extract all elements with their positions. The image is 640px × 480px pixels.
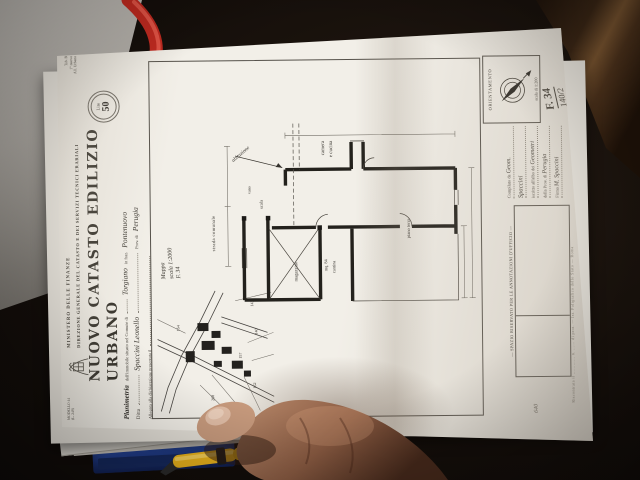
surveyor-name: Spaccini bbox=[517, 175, 524, 198]
albo-label: iscritto all'albo dei bbox=[530, 166, 535, 199]
parcel-number: 154 bbox=[175, 326, 180, 332]
orientation-box: ORIENTAMENTO scala di 1:200 bbox=[482, 55, 541, 124]
cadastre-form-page: MODELLO 44 (L. 249) Tab. B 1° nuovo All.… bbox=[60, 45, 589, 428]
annotation-arrowhead bbox=[276, 163, 283, 168]
prov-di-value: Perugia bbox=[541, 154, 548, 174]
compass-drawing: ORIENTAMENTO scala di 1:200 bbox=[483, 56, 540, 123]
corner-print-line3: All. Urbano bbox=[74, 56, 79, 74]
prov-value: Perugia bbox=[131, 207, 140, 231]
form-model-line2: (L. 249) bbox=[71, 398, 76, 420]
label-cucina: e cucina bbox=[329, 140, 334, 157]
side-note: 640 bbox=[534, 404, 542, 414]
label-magazzino: magazzino bbox=[293, 261, 298, 282]
folio-note: F. 34 140/2 bbox=[540, 84, 568, 111]
compass-arrowhead-icon bbox=[526, 70, 532, 77]
label-cantina: cantina bbox=[331, 261, 336, 274]
stamp-value: 50 bbox=[101, 94, 112, 118]
label-piano-terra: piano terra bbox=[406, 219, 411, 239]
corner-table-print: Tab. B 1° nuovo All. Urbano bbox=[64, 56, 78, 74]
compilato-value: Geom. bbox=[505, 157, 512, 173]
label-scala: scala bbox=[259, 200, 264, 209]
compilato-row: Firma M. Spaccini bbox=[553, 126, 563, 198]
compilato-row: iscritto all'albo dei Geometri bbox=[529, 126, 539, 198]
label-vano: vano bbox=[246, 186, 251, 194]
form-model-print: MODELLO 44 (L. 249) bbox=[67, 398, 76, 420]
ministry-line: MINISTERO DELLE FINANZE bbox=[66, 257, 73, 348]
revenue-stamp-ring: Lire 50 bbox=[91, 93, 117, 119]
plan-section-line bbox=[293, 124, 300, 228]
prov-label: Prov. di bbox=[134, 235, 139, 249]
prov-di-label: della Prov. di bbox=[542, 175, 547, 198]
parcel-number: 140 bbox=[253, 329, 258, 335]
annotation-arrow bbox=[235, 156, 282, 168]
compilato-block: Compilato da Geom. Spaccini iscritto all… bbox=[505, 126, 566, 199]
parcel-number: 157 bbox=[237, 353, 242, 359]
compilato-label: Compilato da bbox=[506, 175, 511, 199]
compilato-row: Spaccini bbox=[517, 126, 527, 198]
photo-scene: MODELLO 44 (L. 249) Tab. B 1° nuovo All.… bbox=[0, 0, 640, 480]
orientation-label: ORIENTAMENTO bbox=[487, 69, 492, 111]
annotations-divider bbox=[516, 315, 570, 317]
annotations-box bbox=[514, 205, 572, 378]
compilato-row: della Prov. di Perugia bbox=[541, 126, 551, 198]
compilato-row: Compilato da Geom. bbox=[505, 126, 515, 198]
label-mq: mq. 84 bbox=[323, 258, 328, 271]
plan-labels: abitazione camera e cucina scala vano st… bbox=[210, 139, 411, 282]
albo-value: Geometri bbox=[529, 141, 536, 164]
knuckle-highlight bbox=[286, 406, 374, 446]
map-note: Mappa scala 1:2000 F. 34 bbox=[159, 247, 183, 280]
revenue-stamp: Lire 50 bbox=[87, 90, 119, 122]
hand bbox=[180, 378, 460, 480]
orientation-scale: scala di 1:200 bbox=[533, 77, 538, 100]
bottom-fine-print: Riscontrata il ………… n. …… di prot. — Ist… bbox=[569, 246, 576, 402]
direction-line: DIREZIONE GENERALE DEL CATASTO E DEI SER… bbox=[74, 144, 82, 348]
signature: M. Spaccini bbox=[553, 157, 560, 187]
floor-plan-drawing: abitazione camera e cucina scala vano st… bbox=[205, 114, 477, 307]
label-strada: strada comunale bbox=[211, 215, 216, 251]
label-abitazione: abitazione bbox=[231, 145, 252, 164]
plan-walls bbox=[243, 141, 457, 302]
firma-label: Firma bbox=[555, 187, 560, 198]
floor-plan-wrap: abitazione camera e cucina scala vano st… bbox=[207, 114, 475, 307]
label-camera: camera bbox=[321, 140, 326, 155]
